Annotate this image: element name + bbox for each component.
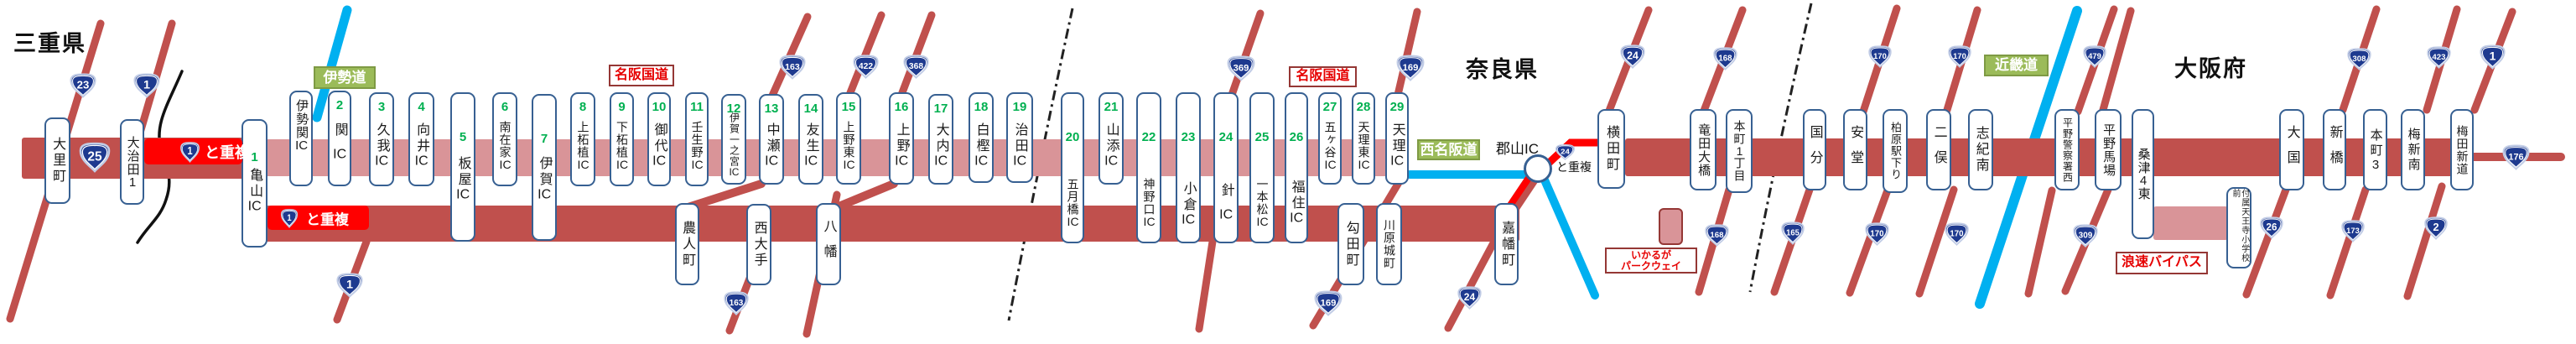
route-shield-24: 24 — [1619, 44, 1646, 69]
crossing-box-3: 西大手 — [746, 204, 771, 285]
route-number: 169 — [1403, 63, 1419, 73]
ic-number: 16 — [891, 101, 912, 113]
box-name-text: 国分 — [1807, 125, 1821, 175]
route-number: 368 — [909, 62, 924, 71]
route-shield-168: 168 — [1704, 223, 1730, 247]
box-name-text: 五ヶ谷IC — [1323, 121, 1336, 170]
ic-number: 22 — [1138, 131, 1160, 143]
ikaruga-parkway-segment — [1659, 208, 1683, 245]
ic-box-iseseki: 伊勢関IC — [289, 91, 313, 186]
box-name-text: 桑津4東 — [2136, 148, 2149, 201]
ic-box-6: 南在家IC6 — [492, 92, 517, 186]
route-shield-173: 173 — [2340, 219, 2366, 242]
box-name-text: 五月橋IC — [1066, 178, 1078, 227]
route-shield-24: 24 — [1555, 143, 1576, 160]
crossing-box-10: 本町1丁目 — [1726, 109, 1753, 193]
koriyama-ic-junction — [1524, 154, 1552, 183]
route-shield-423: 423 — [2426, 45, 2452, 69]
box-name-text: 上野IC — [894, 122, 908, 168]
ic-box-18: 白樫IC18 — [969, 92, 994, 183]
ic-box-7: 伊賀IC7 — [532, 94, 557, 241]
ic-box-26: 福住IC26 — [1285, 92, 1308, 243]
box-name-text: 大内IC — [933, 122, 948, 168]
box-name-text: 亀山IC — [247, 168, 262, 213]
ic-box-16: 上野IC16 — [889, 92, 914, 185]
box-name-text: 久我IC — [374, 122, 388, 168]
box-name-text: 二俣 — [1931, 125, 1945, 175]
crossing-box-8: 横田町 — [1597, 109, 1625, 189]
ic-number: 23 — [1177, 131, 1199, 143]
ic-number: 14 — [800, 102, 822, 115]
crossing-box-13: 柏原駅下り — [1883, 109, 1908, 193]
box-name-text: 中瀬IC — [764, 122, 778, 168]
box-name-text: 針IC — [1218, 183, 1233, 222]
box-name-text: 横田町 — [1604, 125, 1618, 173]
route-number: 170 — [1873, 51, 1887, 60]
route-number: 26 — [2267, 222, 2277, 232]
box-name-text: 小倉IC — [1181, 181, 1195, 227]
route-number: 168 — [1718, 55, 1732, 64]
road-label-kinkido: 近畿道 — [1984, 55, 2049, 76]
route-shield-1: 1 — [2479, 44, 2506, 70]
road-label-ikaruga-parkway: いかるがパークウェイ — [1605, 248, 1697, 274]
box-name-text: 川原城町 — [1383, 219, 1395, 269]
route-number: 422 — [859, 62, 874, 71]
route-shield-369: 369 — [1226, 55, 1256, 81]
box-name-text: 新橋 — [2327, 125, 2341, 175]
box-name-text: 西大手 — [751, 221, 766, 268]
box-name-text: 友生IC — [803, 122, 818, 168]
route-number: 165 — [1786, 228, 1800, 237]
route-shield-479: 479 — [2082, 44, 2107, 68]
ic-box-9: 下柘植IC9 — [610, 92, 634, 186]
koriyama-ic-label: 郡山IC — [1496, 137, 1539, 158]
route-number: 176 — [2508, 153, 2523, 163]
box-name-text: 嘉幡町 — [1499, 221, 1514, 268]
route-number: 1 — [287, 213, 291, 223]
route-shield-24: 24 — [1457, 285, 1483, 310]
route-number: 25 — [87, 149, 101, 164]
overlap-banner-0: 1と重複 — [144, 138, 242, 164]
ic-box-17: 大内IC17 — [928, 94, 953, 185]
route-shield-1: 1 — [132, 72, 161, 98]
ic-box-27: 五ヶ谷IC27 — [1318, 92, 1342, 185]
box-name-text: 板屋IC — [455, 156, 470, 201]
route-shield-170: 170 — [1947, 44, 1972, 68]
box-name-text: 本町1丁目 — [1732, 120, 1745, 182]
route-shield-25: 25 — [78, 141, 112, 173]
ic-number: 12 — [723, 102, 745, 115]
box-name-text: 上柘植IC — [576, 121, 589, 170]
crossing-box-21: 新橋 — [2323, 109, 2346, 190]
route-shield-309: 309 — [2072, 223, 2099, 248]
ic-box-10: 御代IC10 — [647, 92, 671, 186]
route-number: 163 — [785, 62, 800, 72]
crossing-box-12: 安堂 — [1843, 109, 1867, 190]
box-name-text: 南在家IC — [498, 121, 511, 170]
ic-box-8: 上柘植IC8 — [570, 92, 595, 186]
ic-box-20: 五月橋IC20 — [1061, 92, 1084, 243]
route-number: 309 — [2079, 232, 2093, 241]
ic-number: 17 — [930, 102, 952, 115]
route-number: 1 — [187, 144, 193, 157]
route-number: 423 — [2432, 53, 2445, 62]
box-name-text: 大治田1 — [125, 136, 138, 189]
route-number: 173 — [2346, 226, 2360, 235]
prefecture-label-nara: 奈良県 — [1466, 51, 1539, 84]
route-number: 1 — [143, 78, 150, 91]
ic-number: 26 — [1286, 131, 1306, 143]
route-shield-163: 163 — [723, 290, 750, 315]
ic-number: 8 — [572, 101, 594, 113]
box-name-text: 白樫IC — [974, 122, 988, 168]
box-name-text: 平野馬場 — [2101, 123, 2115, 177]
box-name-text: 大里町 — [50, 137, 65, 185]
box-name-text: 神野口IC — [1142, 178, 1155, 227]
route-shield-23: 23 — [69, 72, 97, 98]
ic-number: 25 — [1251, 131, 1273, 143]
ic-box-28: 天理東IC28 — [1352, 92, 1375, 185]
route-number: 163 — [730, 299, 744, 308]
crossing-box-2: 農人町 — [675, 203, 699, 285]
ic-number: 15 — [838, 101, 860, 113]
route-number: 170 — [1950, 230, 1964, 239]
ic-box-14: 友生IC14 — [798, 94, 823, 185]
box-name-text: 一本松IC — [1255, 178, 1268, 227]
route-number: 23 — [77, 78, 90, 91]
ic-number: 7 — [533, 133, 555, 145]
crossing-box-17: 平野馬場 — [2095, 109, 2122, 190]
ic-number: 13 — [761, 102, 782, 115]
road-label-meihan-2: 名阪国道 — [1289, 66, 1357, 87]
ic-number: 6 — [494, 101, 516, 113]
ic-number: 29 — [1387, 101, 1407, 113]
crossing-box-5: 勾田町 — [1337, 203, 1364, 285]
route-number: 1 — [2490, 49, 2496, 62]
box-name-text: 伊賀IC — [537, 156, 551, 201]
overlap-text: と重複 — [306, 207, 349, 228]
box-name-text: 上野東IC — [842, 121, 854, 170]
crossing-box-20: 大国 — [2279, 109, 2304, 190]
route-shield-169: 169 — [1313, 289, 1343, 316]
box-name-text: 梅田新道 — [2455, 125, 2468, 175]
prefecture-label-osaka: 大阪府 — [2174, 50, 2247, 83]
ic-box-24: 針IC24 — [1213, 92, 1239, 243]
route-shield-168: 168 — [1712, 46, 1738, 70]
road-label-nishimeihan: 西名阪道 — [1417, 139, 1480, 160]
route-shield-308: 308 — [2346, 47, 2372, 70]
overlap-text: と重複 — [205, 141, 250, 163]
road-label-naniwa-bypass: 浪速バイパス — [2116, 252, 2208, 274]
ic-box-2: 関IC2 — [328, 91, 351, 186]
ic-box-23: 小倉IC23 — [1176, 92, 1201, 243]
box-name-text: 福住IC — [1289, 180, 1303, 225]
ic-number: 2 — [330, 99, 350, 112]
ic-box-15: 上野東IC15 — [836, 92, 861, 185]
label-line1: いかるが — [1631, 250, 1671, 261]
box-name-text: 山添IC — [1104, 122, 1118, 168]
ic-number: 21 — [1100, 101, 1122, 113]
route-number: 369 — [1233, 64, 1249, 74]
crossing-box-23: 梅新南 — [2401, 109, 2425, 190]
ic-box-12: 伊賀一之宮IC12 — [721, 94, 746, 185]
box-name-text: 農人町 — [680, 221, 694, 268]
ic-box-5: 板屋IC5 — [450, 92, 475, 242]
box-name-text: 伊勢関IC — [294, 99, 308, 152]
box-name-text: 梅新南 — [2406, 128, 2419, 173]
box-name-text: 八幡 — [821, 219, 835, 269]
ic-number: 27 — [1320, 101, 1340, 113]
box-name-text: 関IC — [332, 122, 346, 161]
prefecture-label-mie: 三重県 — [13, 25, 86, 58]
crossing-box-6: 川原城町 — [1376, 203, 1402, 285]
route-shield-170: 170 — [1944, 222, 1970, 246]
route-shield-169: 169 — [1395, 54, 1426, 81]
route-number: 1 — [346, 278, 353, 291]
box-name-text: 大国 — [2284, 125, 2298, 175]
ic-box-25: 一本松IC25 — [1249, 92, 1275, 243]
ic-number: 9 — [611, 101, 632, 113]
route-shield-176: 176 — [2501, 143, 2531, 170]
ic-box-21: 山添IC21 — [1098, 92, 1124, 185]
route-number: 308 — [2352, 55, 2366, 64]
route-shield-1: 1 — [335, 272, 364, 298]
box-name-text: 平野警察署西 — [2062, 117, 2073, 183]
ic-box-4: 向井IC4 — [408, 92, 434, 186]
box-name-text: 付属天王寺小学校前 — [2230, 189, 2248, 267]
route25-map: 亀山IC1伊勢関IC関IC2久我IC3向井IC4板屋IC5南在家IC6伊賀IC7… — [0, 0, 2576, 344]
ic-box-1: 亀山IC1 — [241, 119, 267, 248]
route-shield-368: 368 — [902, 54, 930, 79]
route24-overlap-note: と重複 — [1556, 159, 1592, 175]
ic-number: 24 — [1215, 131, 1237, 143]
ic-box-19: 治田IC19 — [1006, 92, 1033, 183]
box-name-text: 竜田大橋 — [1696, 123, 1710, 177]
box-name-text: 壬生野IC — [690, 121, 703, 170]
label-line2: パークウェイ — [1621, 261, 1681, 272]
box-name-text: 本町3 — [2368, 128, 2381, 171]
overlap-banner-1: 1と重複 — [267, 206, 369, 230]
crossing-box-18: 桑津4東 — [2132, 109, 2154, 239]
box-name-text: 下柘植IC — [615, 121, 628, 170]
box-name-text: 安堂 — [1848, 125, 1862, 175]
ic-number: 19 — [1008, 101, 1031, 113]
ic-number: 5 — [452, 131, 474, 143]
crossing-box-16: 平野警察署西 — [2054, 109, 2080, 190]
route-number: 24 — [1464, 291, 1476, 303]
crossing-box-4: 八幡 — [816, 203, 841, 285]
crossing-box-19: 付属天王寺小学校前 — [2226, 187, 2251, 268]
box-name-text: 伊賀一之宮IC — [729, 112, 740, 177]
crossing-box-0: 大里町 — [44, 117, 70, 204]
route-shield-2: 2 — [2423, 216, 2449, 240]
box-name-text: 向井IC — [414, 122, 428, 168]
route-shield-170: 170 — [1864, 222, 1890, 246]
box-name-text: 志紀南 — [1973, 126, 1987, 174]
crossing-box-9: 竜田大橋 — [1690, 109, 1716, 190]
box-name-text: 御代IC — [652, 122, 666, 168]
route-number: 170 — [1953, 51, 1966, 60]
ic-number: 28 — [1353, 101, 1374, 113]
ic-number: 4 — [410, 101, 433, 113]
crossing-box-14: 二俣 — [1926, 109, 1951, 190]
road-label-isedo: 伊勢道 — [314, 66, 376, 89]
route-number: 479 — [2088, 51, 2101, 60]
ic-number: 3 — [371, 101, 392, 113]
crossing-box-15: 志紀南 — [1968, 109, 1993, 190]
route-number: 24 — [1627, 50, 1639, 62]
ic-box-3: 久我IC3 — [369, 92, 394, 186]
route-shield-26: 26 — [2259, 216, 2284, 239]
route-shield-170: 170 — [1867, 44, 1893, 68]
route-number: 168 — [1710, 231, 1724, 240]
route1-shield-icon: 1 — [280, 208, 299, 228]
route-number: 170 — [1870, 230, 1884, 239]
crossing-box-22: 本町3 — [2363, 109, 2387, 190]
ic-box-29: 天理IC29 — [1385, 92, 1409, 185]
ic-number: 20 — [1062, 131, 1083, 143]
box-name-text: 天理IC — [1389, 122, 1404, 168]
ic-box-13: 中瀬IC13 — [759, 94, 784, 185]
route-number: 24 — [1561, 148, 1570, 155]
box-name-text: 天理東IC — [1357, 121, 1369, 170]
ic-box-22: 神野口IC22 — [1136, 92, 1161, 243]
route1-shield-icon: 1 — [179, 141, 200, 163]
ic-number: 11 — [687, 101, 707, 113]
route-shield-422: 422 — [852, 54, 880, 79]
route-number: 169 — [1321, 299, 1337, 309]
crossing-box-7: 嘉幡町 — [1494, 203, 1519, 285]
route-number: 2 — [2433, 221, 2438, 233]
crossing-box-24: 梅田新道 — [2450, 109, 2474, 190]
ic-number: 18 — [970, 101, 992, 113]
box-name-text: 勾田町 — [1343, 221, 1358, 268]
ic-number: 10 — [649, 101, 669, 113]
road-label-meihan-1: 名阪国道 — [609, 65, 674, 86]
crossing-box-11: 国分 — [1803, 109, 1826, 190]
box-name-text: 柏原駅下り — [1889, 122, 1901, 180]
ic-box-11: 壬生野IC11 — [685, 92, 709, 186]
route-shield-163: 163 — [778, 54, 807, 80]
route-shield-165: 165 — [1780, 221, 1805, 245]
crossing-box-1: 大治田1 — [120, 119, 144, 205]
box-name-text: 治田IC — [1012, 122, 1026, 168]
